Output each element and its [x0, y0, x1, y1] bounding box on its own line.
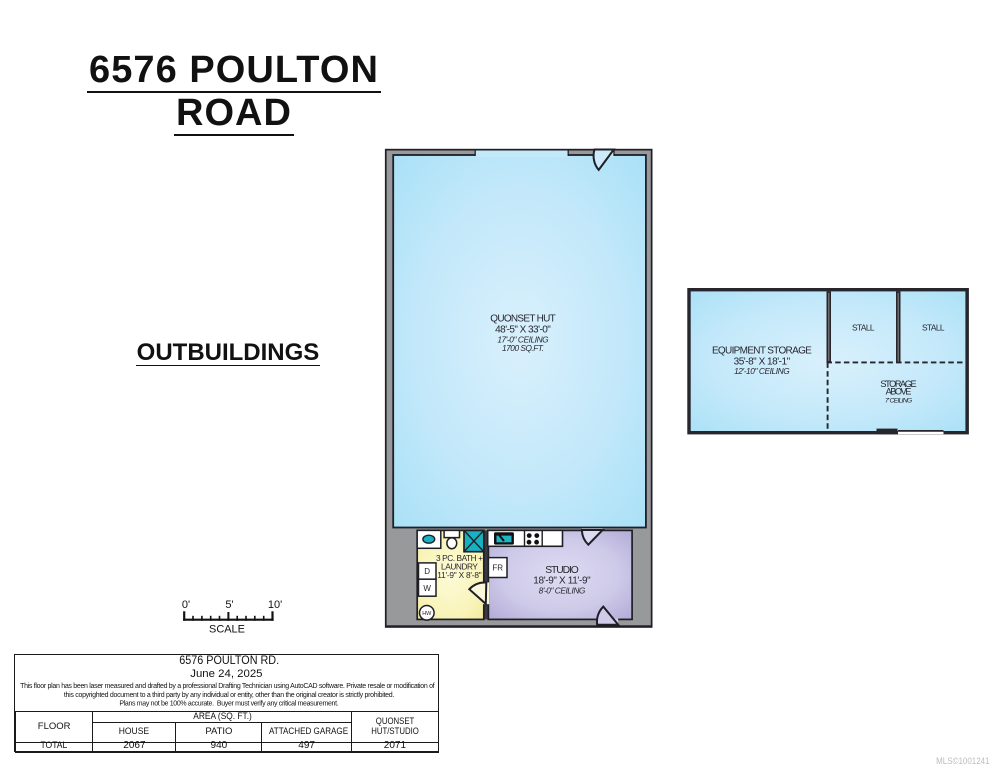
svg-text:SCALE: SCALE	[209, 623, 245, 635]
svg-text:0': 0'	[182, 599, 190, 611]
svg-text:1700 SQ.FT.: 1700 SQ.FT.	[502, 343, 544, 353]
svg-text:STALL: STALL	[922, 322, 945, 332]
svg-text:HW: HW	[422, 611, 432, 617]
svg-text:12'-10" CEILING: 12'-10" CEILING	[734, 366, 790, 376]
svg-text:7' CEILING: 7' CEILING	[885, 398, 912, 405]
svg-text:QUONSET HUT: QUONSET HUT	[490, 313, 556, 324]
svg-text:STALL: STALL	[852, 322, 875, 332]
svg-text:10': 10'	[268, 599, 282, 611]
svg-text:ABOVE: ABOVE	[886, 387, 912, 397]
svg-text:W: W	[423, 584, 431, 593]
svg-text:D: D	[424, 567, 430, 576]
svg-text:5': 5'	[225, 599, 233, 611]
svg-text:FR: FR	[492, 564, 503, 573]
svg-text:8'-0" CEILING: 8'-0" CEILING	[539, 585, 586, 595]
svg-text:STUDIO: STUDIO	[545, 565, 579, 576]
svg-text:11'-9" X 8'-8": 11'-9" X 8'-8"	[437, 570, 481, 580]
svg-text:EQUIPMENT STORAGE: EQUIPMENT STORAGE	[712, 345, 812, 356]
